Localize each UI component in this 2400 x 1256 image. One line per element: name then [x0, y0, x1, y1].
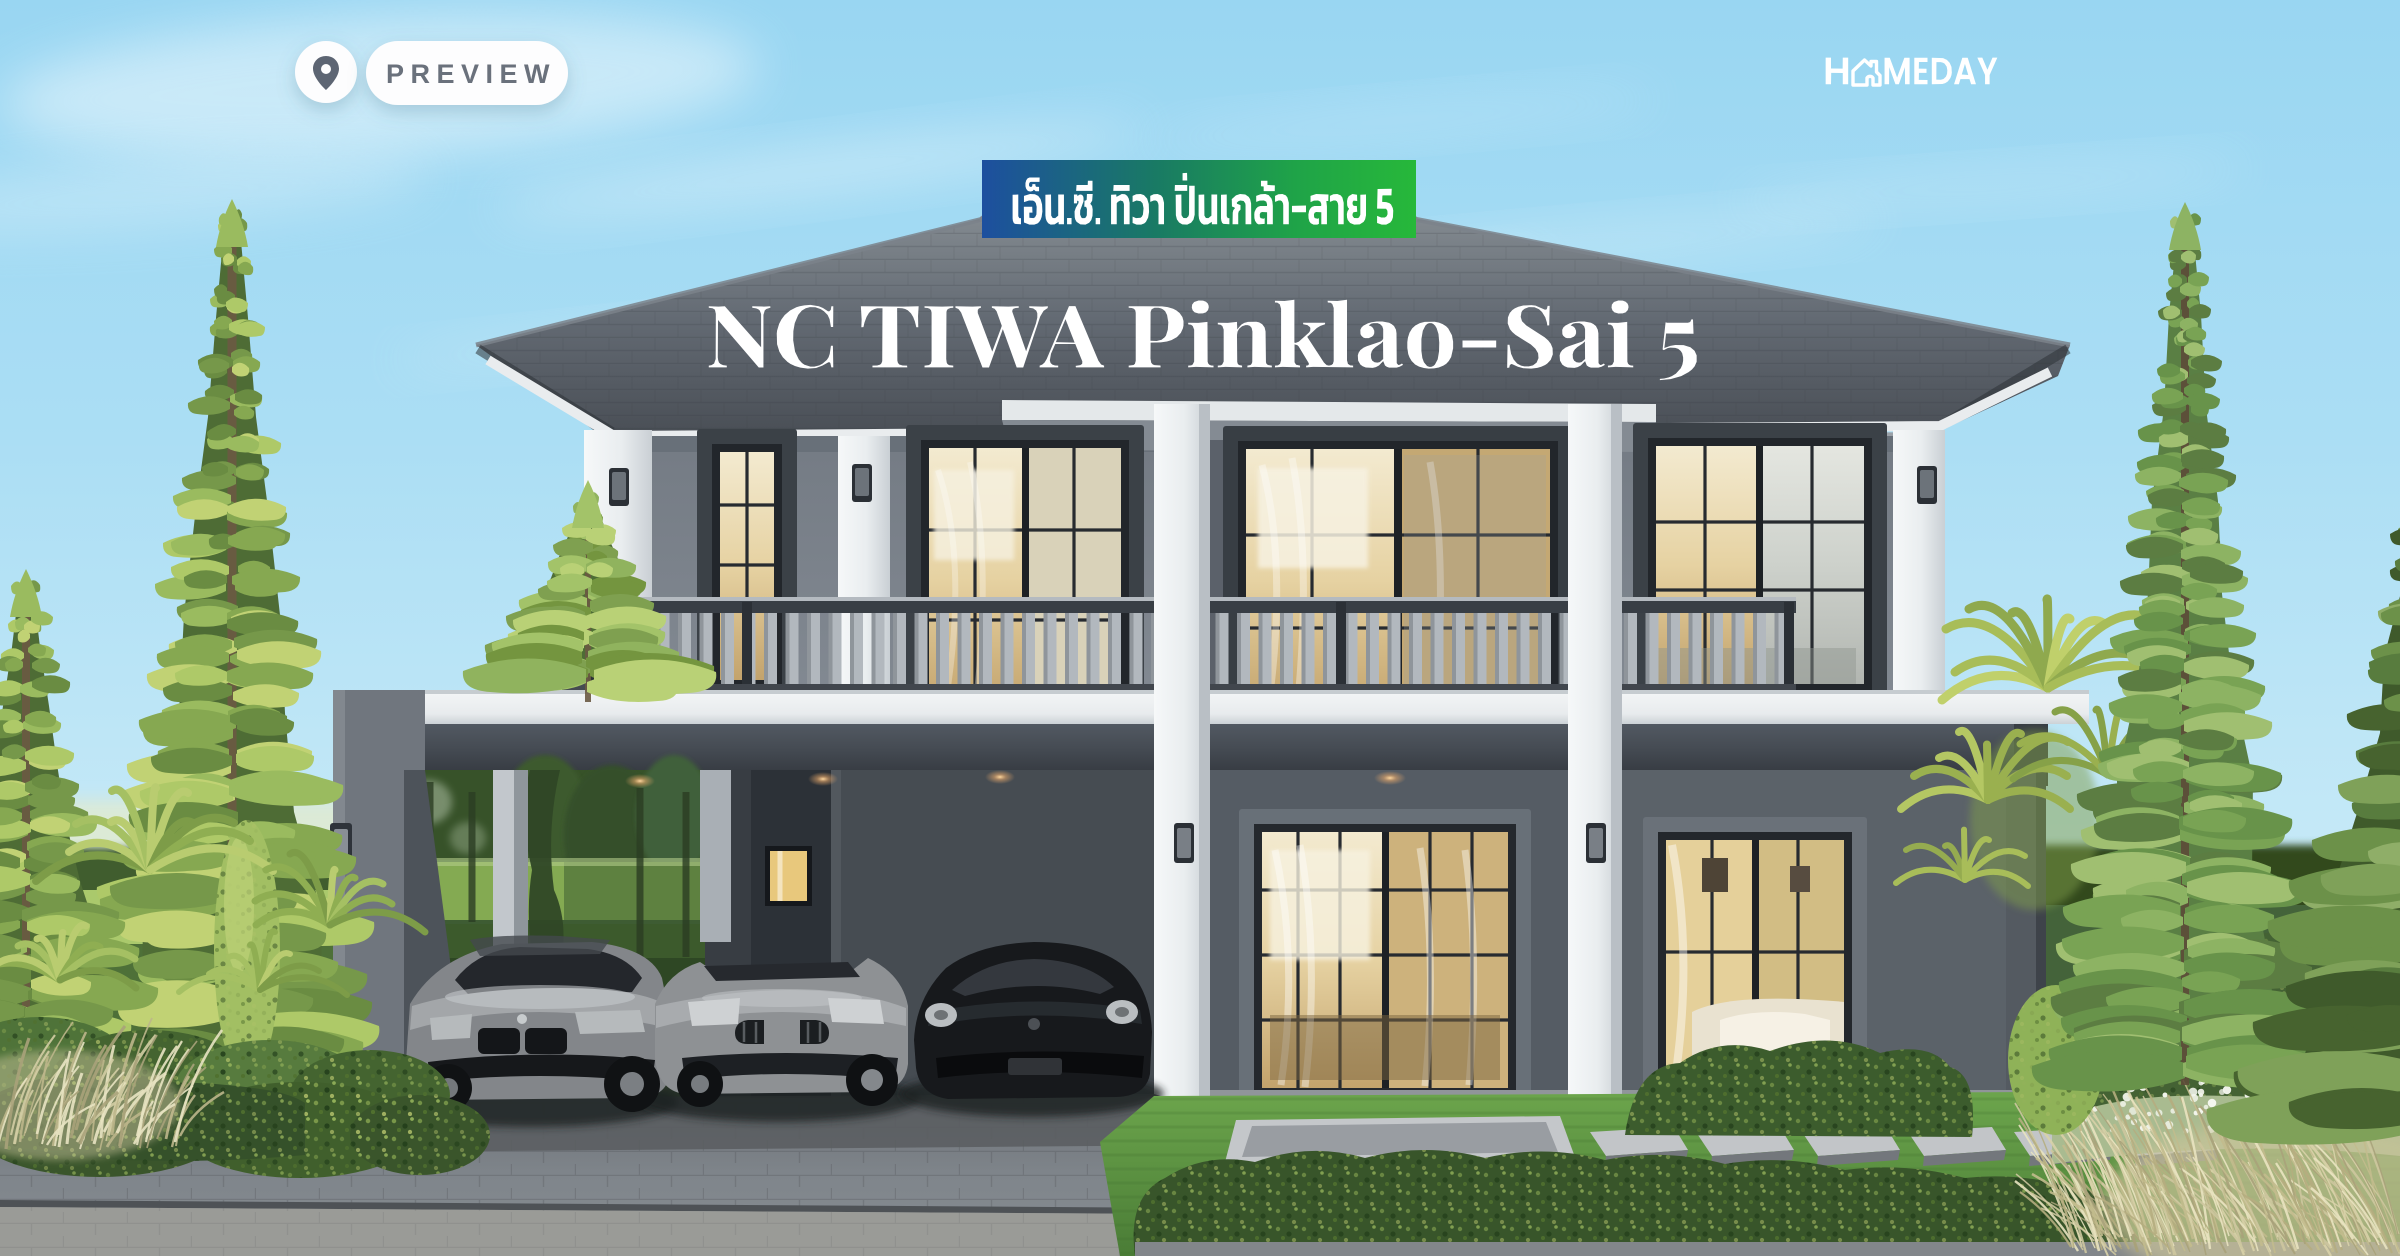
svg-text:PREVIEW: PREVIEW	[386, 59, 556, 89]
